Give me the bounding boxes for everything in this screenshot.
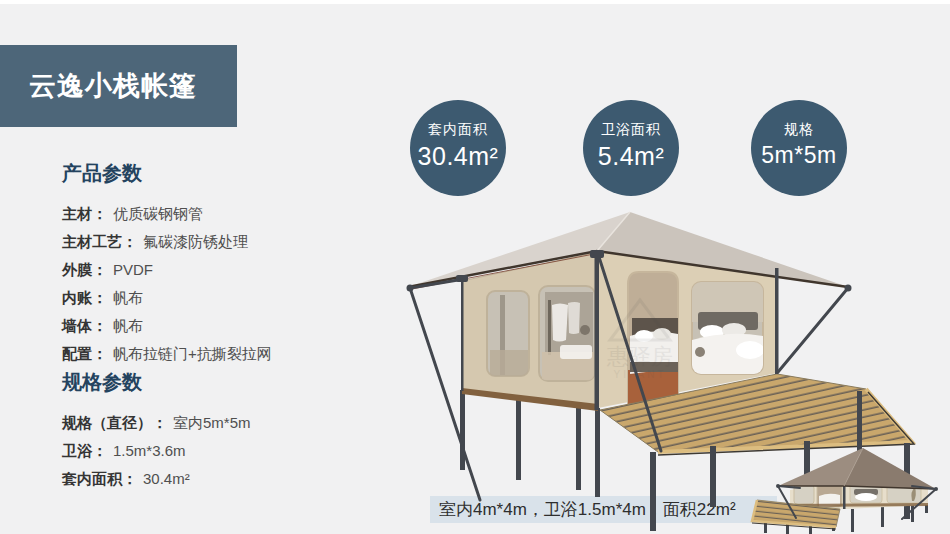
main-tent-rear-legs — [460, 390, 600, 497]
stat-circle-size: 规格 5m*5m — [751, 100, 847, 196]
stat-circle-indoor-area: 套内面积 30.4m² — [410, 100, 506, 196]
stat-label: 卫浴面积 — [583, 121, 679, 139]
small-tent-caption: 室内4m*4m，卫浴1.5m*4m，面积22m² — [430, 496, 777, 523]
param-label: 卫浴： — [62, 442, 107, 459]
param-label: 外膜： — [62, 261, 107, 278]
page-title: 云逸小栈帐篷 — [0, 68, 197, 104]
main-tent-front-wall — [598, 252, 777, 408]
stat-value: 5m*5m — [751, 142, 847, 169]
brand-watermark: 惠驿房 YIFANT — [606, 300, 673, 380]
param-row: 套内面积：30.4m² — [62, 465, 392, 493]
small-tent-left-wall — [790, 480, 844, 509]
main-tent-front-window — [692, 282, 764, 374]
param-value: 优质碳钢钢管 — [113, 205, 203, 222]
main-tent-corner-poles — [461, 250, 779, 410]
param-value: PVDF — [113, 261, 153, 278]
param-label: 配置： — [62, 345, 107, 362]
main-tent-left-wall — [462, 252, 598, 408]
param-row: 卫浴：1.5m*3.6m — [62, 437, 392, 465]
param-row: 主材工艺：氟碳漆防锈处理 — [62, 228, 392, 256]
param-value: 帆布拉链门+抗撕裂拉网 — [113, 345, 272, 362]
stat-label: 套内面积 — [410, 121, 506, 139]
svg-text:YIFANT: YIFANT — [613, 369, 666, 380]
param-row: 主材：优质碳钢钢管 — [62, 200, 392, 228]
main-tent-illustration: 惠驿房 YIFANT — [407, 212, 915, 531]
stat-value: 30.4m² — [410, 142, 506, 171]
spec-params-section: 规格参数 规格（直径）：室内5m*5m 卫浴：1.5m*3.6m 套内面积：30… — [62, 369, 392, 493]
param-row: 规格（直径）：室内5m*5m — [62, 409, 392, 437]
small-tent-baseboard — [790, 503, 928, 507]
small-tent-windows — [794, 482, 921, 507]
param-row: 内账：帆布 — [62, 284, 392, 312]
stat-circle-bathroom-area: 卫浴面积 5.4m² — [583, 100, 679, 196]
param-value: 帆布 — [113, 317, 143, 334]
slide-page: 云逸小栈帐篷 产品参数 主材：优质碳钢钢管 主材工艺：氟碳漆防锈处理 外膜：PV… — [0, 0, 950, 534]
param-label: 规格（直径）： — [62, 414, 167, 431]
product-params-heading: 产品参数 — [62, 160, 392, 187]
param-label: 主材工艺： — [62, 233, 137, 250]
param-label: 套内面积： — [62, 470, 137, 487]
param-value: 30.4m² — [143, 470, 190, 487]
main-tent-roof — [408, 212, 848, 289]
title-banner: 云逸小栈帐篷 — [0, 45, 237, 127]
small-tent-corner-pole — [843, 480, 846, 509]
small-tent-illustration — [752, 448, 938, 534]
stat-label: 规格 — [751, 121, 847, 139]
svg-text:惠驿房: 惠驿房 — [606, 344, 673, 369]
main-tent-left-baseboard — [462, 388, 598, 411]
param-row: 配置：帆布拉链门+抗撕裂拉网 — [62, 340, 392, 368]
stat-value: 5.4m² — [583, 142, 679, 171]
param-label: 主材： — [62, 205, 107, 222]
small-tent-support-rods — [778, 486, 936, 519]
param-label: 内账： — [62, 289, 107, 306]
param-row: 外膜：PVDF — [62, 256, 392, 284]
param-value: 室内5m*5m — [173, 414, 251, 431]
small-tent-rod-brackets — [776, 484, 938, 491]
main-tent-side-window — [487, 286, 595, 381]
top-strip — [0, 0, 950, 4]
product-params-section: 产品参数 主材：优质碳钢钢管 主材工艺：氟碳漆防锈处理 外膜：PVDF 内账：帆… — [62, 160, 392, 368]
main-tent-door — [628, 272, 678, 406]
main-tent-support-rods — [410, 257, 848, 500]
param-label: 墙体： — [62, 317, 107, 334]
small-tent-front-wall — [844, 480, 928, 509]
main-tent-deck — [600, 374, 914, 455]
small-tent-roof — [778, 448, 936, 489]
param-row: 墙体：帆布 — [62, 312, 392, 340]
param-value: 1.5m*3.6m — [113, 442, 186, 459]
small-tent-legs — [764, 487, 928, 534]
main-tent-rod-brackets — [407, 250, 852, 292]
spec-params-heading: 规格参数 — [62, 369, 392, 396]
param-value: 帆布 — [113, 289, 143, 306]
param-value: 氟碳漆防锈处理 — [143, 233, 248, 250]
